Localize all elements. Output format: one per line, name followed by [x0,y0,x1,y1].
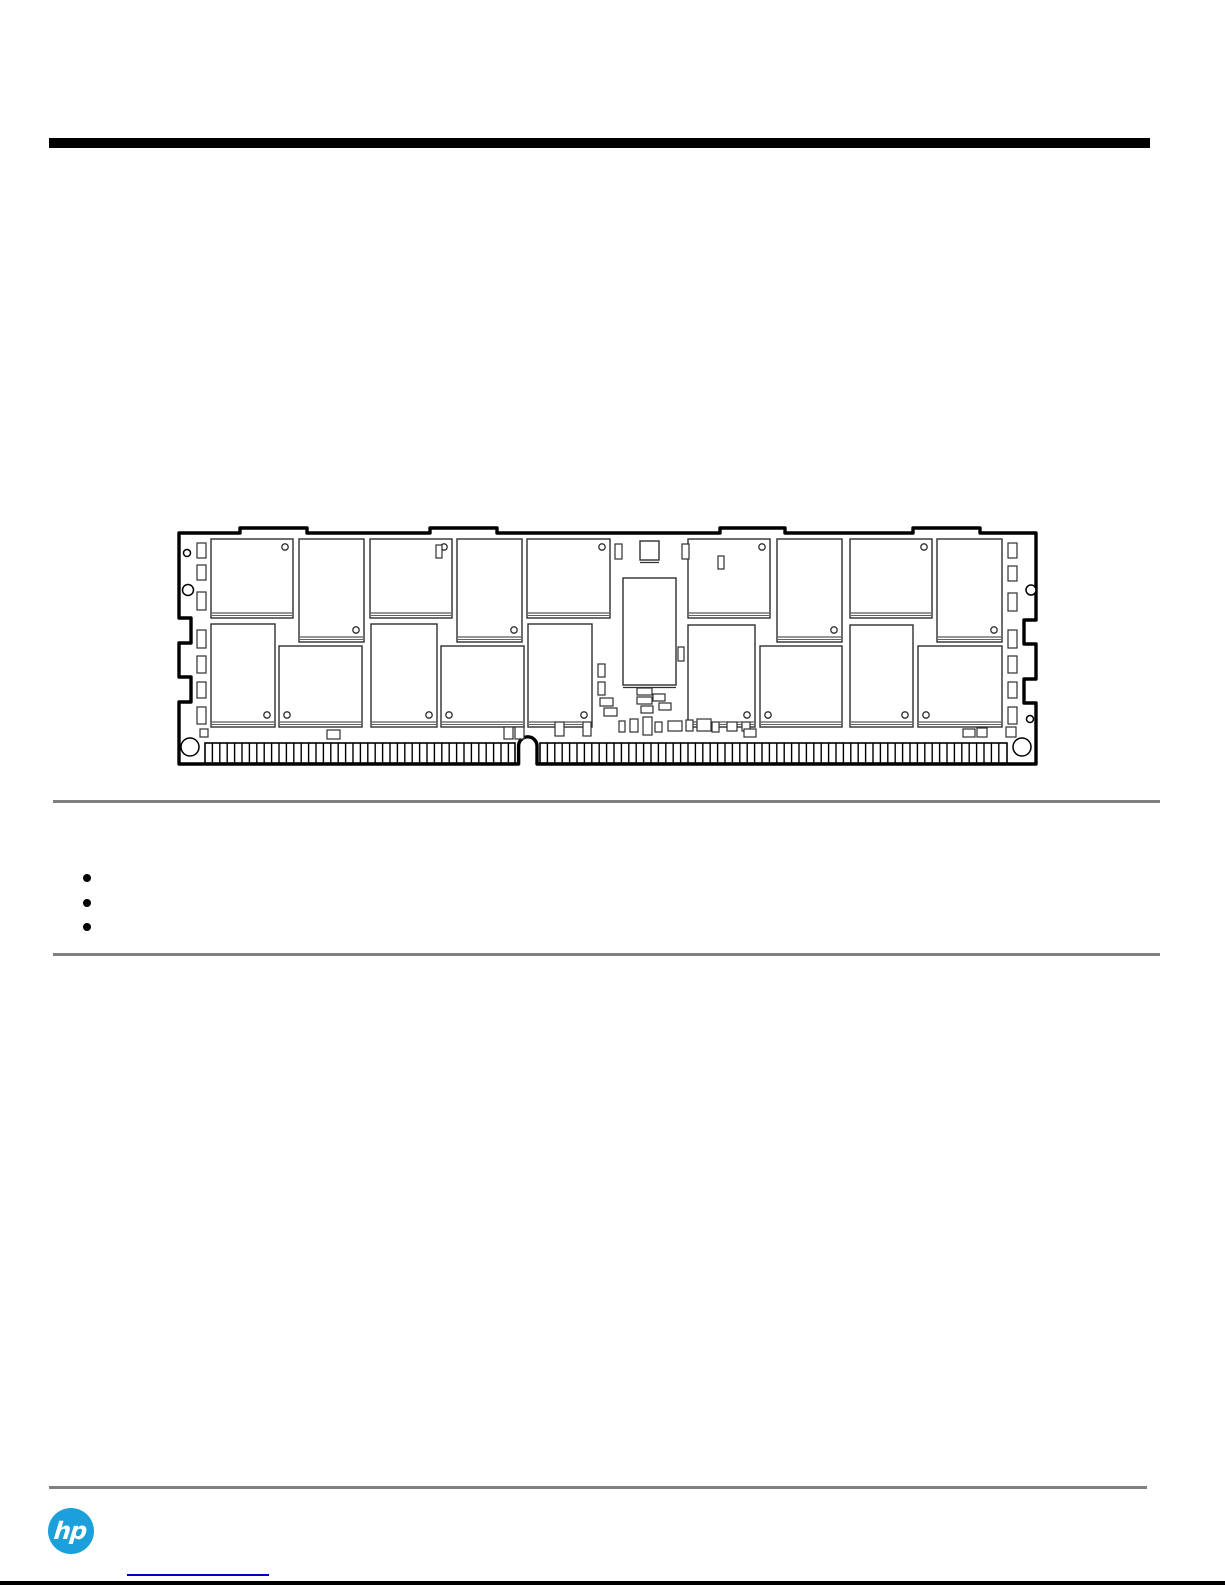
page-bottom-bar [0,1581,1225,1585]
footer-divider [49,1486,1147,1489]
dimm-module-figure [170,520,1045,772]
bullet-list [83,874,101,948]
dimm-module-drawing [170,520,1045,772]
list-item [83,899,101,907]
header-divider-bar [49,138,1150,148]
footer-link[interactable] [127,1560,269,1576]
hp-logo-text: hp [53,1519,88,1543]
page: hp [0,0,1225,1585]
section-divider-top [53,800,1160,803]
list-item [83,923,101,931]
hp-logo: hp [48,1508,94,1554]
section-divider-bottom [53,953,1160,956]
list-item [83,874,101,882]
bullet-icon [83,923,91,931]
bullet-icon [83,899,91,907]
bullet-icon [83,874,91,882]
